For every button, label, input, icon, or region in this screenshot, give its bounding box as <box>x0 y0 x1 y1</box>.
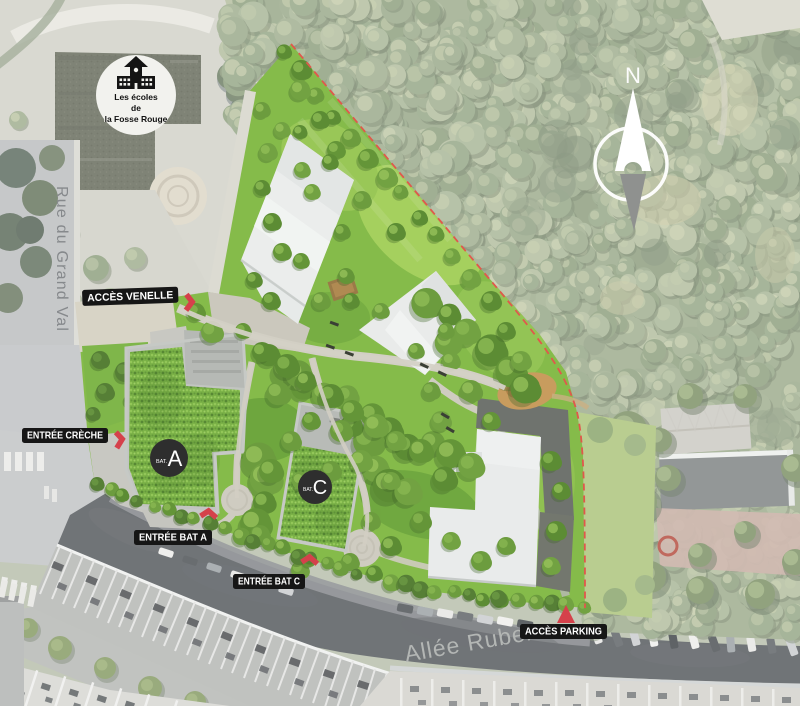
svg-text:ENTRÉE CRÈCHE: ENTRÉE CRÈCHE <box>27 429 103 442</box>
svg-text:de: de <box>131 103 141 113</box>
svg-text:ENTRÉE BAT A: ENTRÉE BAT A <box>139 531 207 544</box>
svg-text:ACCÈS PARKING: ACCÈS PARKING <box>525 625 602 638</box>
svg-text:ENTRÉE BAT C: ENTRÉE BAT C <box>238 575 300 588</box>
svg-text:A: A <box>168 446 183 471</box>
svg-text:C: C <box>313 477 327 499</box>
svg-text:BAT.: BAT. <box>156 459 168 465</box>
svg-text:Les écoles: Les écoles <box>114 92 158 102</box>
svg-text:Rue du Grand Val: Rue du Grand Val <box>53 186 70 332</box>
svg-text:la Fosse Rouge: la Fosse Rouge <box>105 114 168 124</box>
svg-text:BAT.: BAT. <box>303 487 313 493</box>
svg-text:N: N <box>625 63 641 88</box>
